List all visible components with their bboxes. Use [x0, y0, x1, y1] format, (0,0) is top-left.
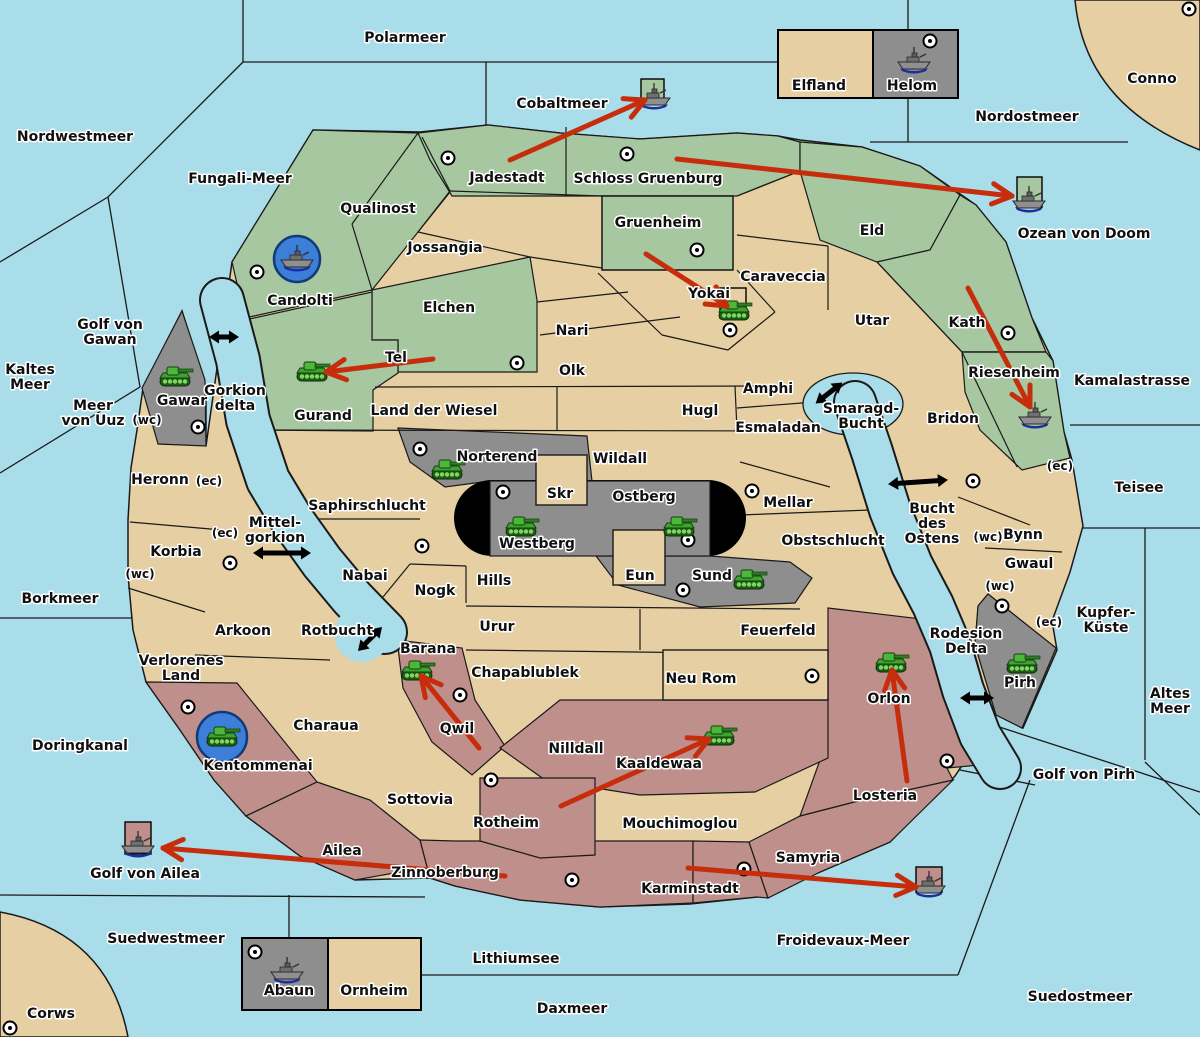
- tank-wheel: [220, 739, 224, 743]
- tank-wheel: [168, 379, 172, 383]
- territory-label-text: Candolti: [267, 293, 333, 309]
- sea-zone-label-text: gorkion: [245, 530, 305, 546]
- territory-label-text: Karminstadt: [641, 881, 739, 897]
- sea-zone-label-text: Rodesion: [930, 626, 1003, 642]
- tank-barrel: [1025, 656, 1040, 659]
- territory-label-candolti[interactable]: Candolti: [267, 293, 333, 309]
- sea-zone-label-text: Delta: [945, 641, 987, 657]
- ship-hull: [281, 260, 313, 267]
- supply-center-dot: [192, 421, 205, 434]
- territory-label-jadestadt[interactable]: Jadestadt: [468, 170, 545, 186]
- ship-superstructure: [131, 841, 143, 846]
- tank-wheel: [1030, 666, 1034, 670]
- territory-label-text: Mellar: [763, 495, 812, 511]
- territory-label-text: Yokai: [687, 286, 730, 302]
- territory-label-nogk[interactable]: Nogk: [415, 583, 456, 599]
- territory-label-text: Skr: [547, 486, 573, 502]
- sea-zone-label-text: Doringkanal: [32, 738, 128, 754]
- territory-label-qwil[interactable]: Qwil: [440, 721, 474, 737]
- tank-wheel: [742, 582, 746, 586]
- tank-wheel: [672, 529, 676, 533]
- supply-center-dot: [251, 266, 264, 279]
- tank-wheel: [677, 529, 681, 533]
- sea-zone-label-text: Bucht: [909, 501, 955, 517]
- territory-label-text: Tel: [385, 350, 407, 366]
- sea-zone-label-polarmeer[interactable]: Polarmeer: [364, 30, 446, 46]
- coast-tag-text: (ec): [1036, 615, 1062, 629]
- territory-label-text: Nabai: [342, 568, 387, 584]
- supply-center-dot: [224, 557, 237, 570]
- territory-label-text: Qualinost: [340, 201, 416, 217]
- tank-wheel: [410, 673, 414, 677]
- tank-wheel: [315, 374, 319, 378]
- territory-label-text: Kaaldewaa: [616, 756, 702, 772]
- sea-zone-label-text: Meer: [73, 398, 113, 414]
- supply-center-core: [570, 878, 574, 882]
- tank-barrel: [225, 729, 240, 732]
- sea-zone-label-text: Nordwestmeer: [17, 129, 133, 145]
- territory-label-text: Zinnoberburg: [391, 865, 499, 881]
- tank-turret: [711, 726, 723, 734]
- ship-superstructure: [280, 967, 292, 972]
- sea-zone-label-text: Smaragd-: [823, 401, 900, 417]
- territory-label-text: Ailea: [322, 843, 361, 859]
- coast-tag-text: (wc): [973, 530, 1002, 544]
- territory-label-text: Jossangia: [406, 240, 482, 256]
- territory-label-nari[interactable]: Nari: [556, 323, 589, 339]
- sea-zone-label-altes-meer[interactable]: AltesMeer: [1150, 686, 1190, 717]
- territory-label-text: Land: [162, 668, 200, 684]
- territory-label-norterend[interactable]: Norterend: [457, 449, 538, 465]
- territory-label-gwaul[interactable]: Gwaul: [1005, 556, 1054, 572]
- territory-label-wildall[interactable]: Wildall: [593, 451, 647, 467]
- sea-zone-label-nordwestmeer[interactable]: Nordwestmeer: [17, 129, 133, 145]
- supply-center-dot: [442, 152, 455, 165]
- game-map[interactable]: PolarmeerNordwestmeerFungali-MeerCobaltm…: [0, 0, 1200, 1037]
- territory-label-kaaldewaa[interactable]: Kaaldewaa: [616, 756, 702, 772]
- sea-zone-label-golf-von-pirh[interactable]: Golf von Pirh: [1033, 767, 1135, 783]
- territory-label-rotheim[interactable]: Rotheim: [473, 815, 539, 831]
- ship-superstructure: [1022, 196, 1034, 201]
- territory-label-gruenheim[interactable]: Gruenheim: [615, 215, 702, 231]
- supply-center-core: [1000, 604, 1004, 608]
- ship-hull: [1013, 201, 1045, 208]
- tank-barrel: [420, 663, 435, 666]
- territory-label-qualinost[interactable]: Qualinost: [340, 201, 416, 217]
- territory-label-text: Arkoon: [215, 623, 271, 639]
- territory-label-hugl[interactable]: Hugl: [682, 403, 719, 419]
- territory-label-text: Helom: [887, 78, 937, 94]
- sea-zone-label-doringkanal[interactable]: Doringkanal: [32, 738, 128, 754]
- territory-label-karminstadt[interactable]: Karminstadt: [641, 881, 739, 897]
- tank-wheel: [742, 313, 746, 317]
- supply-center-core: [928, 39, 932, 43]
- territory-label-text: Gruenheim: [615, 215, 702, 231]
- territory-label-samyria[interactable]: Samyria: [776, 850, 840, 866]
- ornheim-box[interactable]: [328, 938, 421, 1010]
- tank-turret: [167, 367, 179, 375]
- territory-label-abaun[interactable]: Abaun: [264, 983, 314, 999]
- sea-zone-label-text: Rotbucht: [301, 623, 373, 639]
- territory-label-ailea[interactable]: Ailea: [322, 843, 361, 859]
- territory-label-text: Land der Wiesel: [371, 403, 498, 419]
- territory-label-skr[interactable]: Skr: [547, 486, 573, 502]
- sea-zone-label-froidevaux-meer[interactable]: Froidevaux-Meer: [777, 933, 910, 949]
- territory-label-text: Heronn: [131, 472, 189, 488]
- supply-center-core: [1187, 7, 1191, 11]
- coast-tag-wc: (wc): [132, 413, 161, 427]
- tank-wheel: [435, 472, 439, 476]
- tank-wheel: [687, 529, 691, 533]
- tank-barrel: [524, 519, 539, 522]
- territory-label-neu-rom[interactable]: Neu Rom: [665, 671, 736, 687]
- ship-bridge: [1033, 408, 1038, 412]
- tank-barrel: [682, 519, 697, 522]
- territory-label-jossangia[interactable]: Jossangia: [406, 240, 482, 256]
- supply-center-dot: [996, 600, 1009, 613]
- territory-label-text: Urur: [479, 619, 514, 635]
- territory-label-heronn[interactable]: Heronn: [131, 472, 189, 488]
- tank-wheel: [305, 374, 309, 378]
- tank-wheel: [727, 313, 731, 317]
- supply-center-dot: [485, 774, 498, 787]
- sea-zone-label-text: Kaltes: [5, 362, 55, 378]
- territory-label-text: Nilldall: [548, 741, 603, 757]
- sea-zone-label-text: Bucht: [838, 416, 884, 432]
- territory-label-text: Gurand: [294, 408, 352, 424]
- supply-center-dot: [1183, 3, 1196, 16]
- territory-label-urur[interactable]: Urur: [479, 619, 514, 635]
- sea-zone-label-kupfer-k-ste[interactable]: Kupfer-Küste: [1077, 605, 1136, 636]
- supply-center-core: [420, 544, 424, 548]
- coast-tag-text: (wc): [125, 567, 154, 581]
- tank-wheel: [529, 529, 533, 533]
- territory-label-mouchimoglou[interactable]: Mouchimoglou: [622, 816, 737, 832]
- territory-label-text: Kath: [949, 315, 986, 331]
- territory-label-text: Elfland: [792, 78, 846, 94]
- ship-superstructure: [290, 255, 302, 260]
- territory-label-text: Sottovia: [387, 792, 453, 808]
- sea-zone-label-text: Teisee: [1114, 480, 1163, 496]
- sea-zone-label-nordostmeer[interactable]: Nordostmeer: [975, 109, 1078, 125]
- territory-label-utar[interactable]: Utar: [855, 313, 890, 329]
- territory-label-sottovia[interactable]: Sottovia: [387, 792, 453, 808]
- sea-zone-label-text: Gorkion: [204, 383, 266, 399]
- sea-zone-label-kamalastrasse[interactable]: Kamalastrasse: [1074, 373, 1190, 389]
- territory-label-text: Gawar: [157, 393, 207, 409]
- territory-label-chapablublek[interactable]: Chapablublek: [471, 665, 579, 681]
- territory-label-olk[interactable]: Olk: [559, 363, 586, 379]
- coast-tag-ec: (ec): [196, 474, 222, 488]
- tank-wheel: [732, 313, 736, 317]
- sea-zone-label-text: Meer: [10, 377, 50, 393]
- sea-zone-label-text: Mittel-: [249, 515, 301, 531]
- territory-label-mellar[interactable]: Mellar: [763, 495, 812, 511]
- tank-wheel: [215, 739, 219, 743]
- territory-label-text: Caraveccia: [740, 269, 826, 285]
- territory-label-text: Olk: [559, 363, 586, 379]
- territory-label-feuerfeld[interactable]: Feuerfeld: [740, 623, 815, 639]
- territory-label-text: Norterend: [457, 449, 538, 465]
- territory-label-korbia[interactable]: Korbia: [150, 544, 201, 560]
- territory-label-land-der-wiesel[interactable]: Land der Wiesel: [371, 403, 498, 419]
- supply-center-core: [8, 1026, 12, 1030]
- supply-center-dot: [967, 475, 980, 488]
- supply-center-dot: [414, 443, 427, 456]
- territory-label-ornheim[interactable]: Ornheim: [340, 983, 408, 999]
- sea-zone-label-text: Golf von: [77, 317, 143, 333]
- supply-center-core: [255, 270, 259, 274]
- sea-zone-label-suedostmeer[interactable]: Suedostmeer: [1028, 989, 1133, 1005]
- territory-label-corws[interactable]: Corws: [27, 1006, 75, 1022]
- territory-label-text: Nogk: [415, 583, 456, 599]
- supply-center-core: [515, 361, 519, 365]
- territory-label-tel[interactable]: Tel: [385, 350, 407, 366]
- ship-superstructure: [1028, 412, 1040, 417]
- territory-label-text: Charaua: [293, 718, 358, 734]
- territory-label-text: Jadestadt: [468, 170, 545, 186]
- supply-center-core: [196, 425, 200, 429]
- sea-zone-label-text: Gawan: [83, 332, 136, 348]
- territory-label-zinnoberburg[interactable]: Zinnoberburg: [391, 865, 499, 881]
- territory-label-losteria[interactable]: Losteria: [853, 788, 917, 804]
- sea-zone-label-text: Altes: [1150, 686, 1190, 702]
- territory-label-text: Westberg: [499, 536, 575, 552]
- coast-tag-text: (ec): [212, 526, 238, 540]
- coast-tag-text: (ec): [1047, 459, 1073, 473]
- sea-zone-label-text: Golf von Ailea: [90, 866, 200, 882]
- supply-center-dot: [941, 755, 954, 768]
- territory-label-bridon[interactable]: Bridon: [927, 411, 979, 427]
- tank-wheel: [737, 313, 741, 317]
- supply-center-core: [750, 489, 754, 493]
- territory-label-charaua[interactable]: Charaua: [293, 718, 358, 734]
- supply-center-dot: [511, 357, 524, 370]
- tank-wheel: [737, 582, 741, 586]
- supply-center-core: [253, 950, 257, 954]
- sea-zone-label-daxmeer[interactable]: Daxmeer: [537, 1001, 608, 1017]
- sea-zone-label-lithiumsee[interactable]: Lithiumsee: [472, 951, 559, 967]
- territory-label-westberg[interactable]: Westberg: [499, 536, 575, 552]
- sea-zone-label-text: Küste: [1083, 620, 1128, 636]
- territory-label-nilldall[interactable]: Nilldall: [548, 741, 603, 757]
- tank-barrel: [752, 572, 767, 575]
- supply-center-dot: [691, 244, 704, 257]
- supply-center-dot: [566, 874, 579, 887]
- sea-zone-label-text: delta: [215, 398, 255, 414]
- territory-label-text: Bynn: [1003, 527, 1043, 543]
- supply-center-dot: [1002, 327, 1015, 340]
- supply-center-dot: [806, 670, 819, 683]
- tank-turret: [409, 661, 421, 669]
- territory-label-esmaladan[interactable]: Esmaladan: [735, 420, 821, 436]
- territory-label-text: Losteria: [853, 788, 917, 804]
- ship-bridge: [912, 53, 917, 57]
- tank-wheel: [752, 582, 756, 586]
- sea-zone-label-text: Fungali-Meer: [188, 171, 292, 187]
- sea-zone-label-cobaltmeer[interactable]: Cobaltmeer: [516, 96, 607, 112]
- sea-zone-label-text: Suedwestmeer: [107, 931, 225, 947]
- territory-label-arkoon[interactable]: Arkoon: [215, 623, 271, 639]
- territory-label-yokai[interactable]: Yokai: [687, 286, 730, 302]
- territory-label-pirh[interactable]: Pirh: [1004, 675, 1036, 691]
- territory-label-amphi[interactable]: Amphi: [743, 381, 793, 397]
- territory-label-text: Orlon: [867, 691, 910, 707]
- territory-label-text: Ostberg: [612, 489, 675, 505]
- sea-zone-label-text: Meer: [1150, 701, 1190, 717]
- tank-wheel: [667, 529, 671, 533]
- sea-zone-label-fungali-meer[interactable]: Fungali-Meer: [188, 171, 292, 187]
- territory-label-obstschlucht[interactable]: Obstschlucht: [781, 533, 885, 549]
- tank-wheel: [310, 374, 314, 378]
- supply-center-dot: [746, 485, 759, 498]
- territory-label-text: Eld: [860, 223, 884, 239]
- territory-label-nabai[interactable]: Nabai: [342, 568, 387, 584]
- tank-wheel: [455, 472, 459, 476]
- territory-label-elchen[interactable]: Elchen: [423, 300, 475, 316]
- territory-label-eun[interactable]: Eun: [625, 568, 655, 584]
- territory-label-orlon[interactable]: Orlon: [867, 691, 910, 707]
- tank-wheel: [183, 379, 187, 383]
- supply-center-dot: [4, 1022, 17, 1035]
- tank-wheel: [757, 582, 761, 586]
- territory-label-text: Hugl: [682, 403, 719, 419]
- territory-label-gurand[interactable]: Gurand: [294, 408, 352, 424]
- sea-zone-label-borkmeer[interactable]: Borkmeer: [22, 591, 99, 607]
- sea-zone-label-teisee[interactable]: Teisee: [1114, 480, 1163, 496]
- ship-bridge: [136, 837, 141, 841]
- tank-turret: [439, 460, 451, 468]
- territory-label-sund[interactable]: Sund: [692, 568, 732, 584]
- territory-label-text: Saphirschlucht: [308, 498, 426, 514]
- tank-wheel: [210, 739, 214, 743]
- territory-label-text: Chapablublek: [471, 665, 579, 681]
- supply-center-core: [446, 156, 450, 160]
- territory-label-kath[interactable]: Kath: [949, 315, 986, 331]
- territory-label-text: Hills: [477, 573, 511, 589]
- territory-label-text: Riesenheim: [968, 365, 1060, 381]
- territory-label-gawar[interactable]: Gawar: [157, 393, 207, 409]
- coast-tag-wc: (wc): [125, 567, 154, 581]
- sea-zone-label-mittel-gorkion[interactable]: Mittel-gorkion: [245, 515, 305, 546]
- supply-center-dot: [621, 148, 634, 161]
- diplomacy-map-canvas[interactable]: PolarmeerNordwestmeerFungali-MeerCobaltm…: [0, 0, 1200, 1037]
- tank-barrel: [315, 364, 330, 367]
- sea-zone-label-ozean-von-doom[interactable]: Ozean von Doom: [1018, 226, 1151, 242]
- sea-zone-label-suedwestmeer[interactable]: Suedwestmeer: [107, 931, 225, 947]
- territory-label-text: Kentommenai: [203, 758, 312, 774]
- territory-label-text: Bridon: [927, 411, 979, 427]
- tank-wheel: [450, 472, 454, 476]
- supply-center-core: [686, 538, 690, 542]
- coast-tag-ec: (ec): [212, 526, 238, 540]
- territory-label-hills[interactable]: Hills: [477, 573, 511, 589]
- tank-wheel: [712, 738, 716, 742]
- tank-barrel: [894, 655, 909, 658]
- tank-wheel: [747, 582, 751, 586]
- territory-label-text: Schloss Gruenburg: [573, 171, 722, 187]
- ship-bridge: [652, 89, 657, 93]
- territory-label-helom[interactable]: Helom: [887, 78, 937, 94]
- tank-wheel: [514, 529, 518, 533]
- ship-superstructure: [907, 57, 919, 62]
- tank-wheel: [727, 738, 731, 742]
- tank-turret: [741, 570, 753, 578]
- sea-zone-label-kaltes-meer[interactable]: KaltesMeer: [5, 362, 55, 393]
- territory-label-text: Amphi: [743, 381, 793, 397]
- territory-label-ostberg[interactable]: Ostberg: [612, 489, 675, 505]
- sea-zone-label-golf-von-ailea[interactable]: Golf von Ailea: [90, 866, 200, 882]
- territory-label-caraveccia[interactable]: Caraveccia: [740, 269, 826, 285]
- green-power-region[interactable]: [602, 196, 733, 270]
- tank-turret: [671, 517, 683, 525]
- tank-turret: [304, 362, 316, 370]
- territory-label-text: Neu Rom: [665, 671, 736, 687]
- territory-label-text: Rotheim: [473, 815, 539, 831]
- tank-wheel: [1025, 666, 1029, 670]
- supply-center-core: [228, 561, 232, 565]
- supply-center-dot: [497, 486, 510, 499]
- sea-zone-label-text: von Uuz: [61, 413, 124, 429]
- ship-superstructure: [922, 881, 934, 886]
- tank-turret: [883, 653, 895, 661]
- territory-label-bynn[interactable]: Bynn: [1003, 527, 1043, 543]
- tank-wheel: [405, 673, 409, 677]
- ship-bridge: [285, 963, 290, 967]
- sea-zone-label-rotbucht[interactable]: Rotbucht: [301, 623, 373, 639]
- supply-center-core: [681, 588, 685, 592]
- ship-hull: [1019, 417, 1051, 424]
- territory-label-kentommenai[interactable]: Kentommenai: [203, 758, 312, 774]
- territory-label-elfland[interactable]: Elfland: [792, 78, 846, 94]
- supply-center-core: [625, 152, 629, 156]
- coast-tag-ec: (ec): [1047, 459, 1073, 473]
- tank-wheel: [879, 665, 883, 669]
- territory-label-text: Utar: [855, 313, 890, 329]
- move-arrow-head: [623, 99, 645, 100]
- territory-label-saphirschlucht[interactable]: Saphirschlucht: [308, 498, 426, 514]
- tank-wheel: [722, 313, 726, 317]
- territory-label-text: Barana: [400, 641, 456, 657]
- territory-label-eld[interactable]: Eld: [860, 223, 884, 239]
- supply-center-core: [458, 693, 462, 697]
- tank-wheel: [445, 472, 449, 476]
- sea-zone-label-text: Ostens: [905, 531, 960, 547]
- territory-label-text: Sund: [692, 568, 732, 584]
- tank-wheel: [320, 374, 324, 378]
- territory-label-conno[interactable]: Conno: [1127, 71, 1177, 87]
- strait-arrow-shaft: [894, 480, 942, 483]
- territory-label-text: Conno: [1127, 71, 1177, 87]
- territory-label-riesenheim[interactable]: Riesenheim: [968, 365, 1060, 381]
- territory-label-schloss-gruenburg[interactable]: Schloss Gruenburg: [573, 171, 722, 187]
- tank-wheel: [884, 665, 888, 669]
- territory-label-text: Pirh: [1004, 675, 1036, 691]
- territory-label-text: Obstschlucht: [781, 533, 885, 549]
- ship-superstructure: [647, 93, 659, 98]
- coast-tag-text: (ec): [196, 474, 222, 488]
- sea-zone-label-golf-von-gawan[interactable]: Golf vonGawan: [77, 317, 143, 348]
- supply-center-core: [418, 447, 422, 451]
- tank-wheel: [722, 738, 726, 742]
- territory-label-barana[interactable]: Barana: [400, 641, 456, 657]
- territory-label-text: Nari: [556, 323, 589, 339]
- territory-label-text: Verlorenes: [138, 653, 223, 669]
- ship-hull: [898, 62, 930, 69]
- territory-label-text: Corws: [27, 1006, 75, 1022]
- coast-tag-ec: (ec): [1036, 615, 1062, 629]
- tank-barrel: [722, 728, 737, 731]
